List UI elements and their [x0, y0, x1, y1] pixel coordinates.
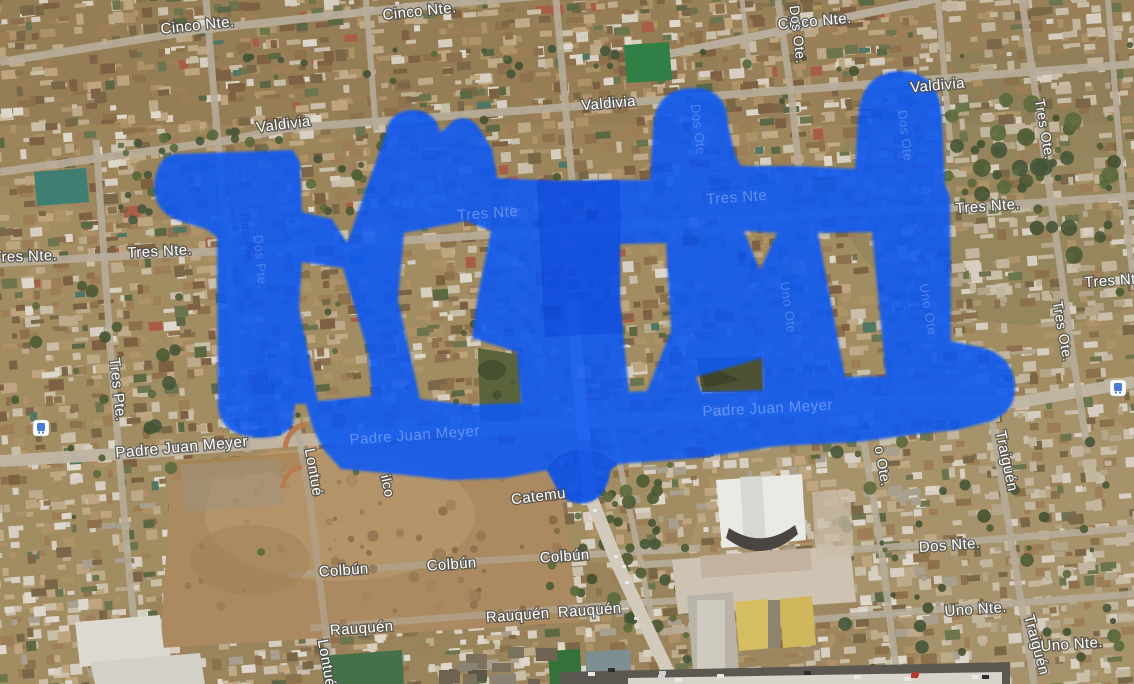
svg-text:Tres Nte.: Tres Nte.: [127, 241, 193, 261]
svg-text:Colbún: Colbún: [539, 546, 590, 566]
svg-text:Tres Nte.: Tres Nte.: [1084, 270, 1134, 291]
svg-text:Colbún: Colbún: [318, 560, 369, 580]
svg-text:Tres Nte.: Tres Nte.: [0, 247, 57, 266]
svg-text:Colbún: Colbún: [426, 554, 477, 574]
